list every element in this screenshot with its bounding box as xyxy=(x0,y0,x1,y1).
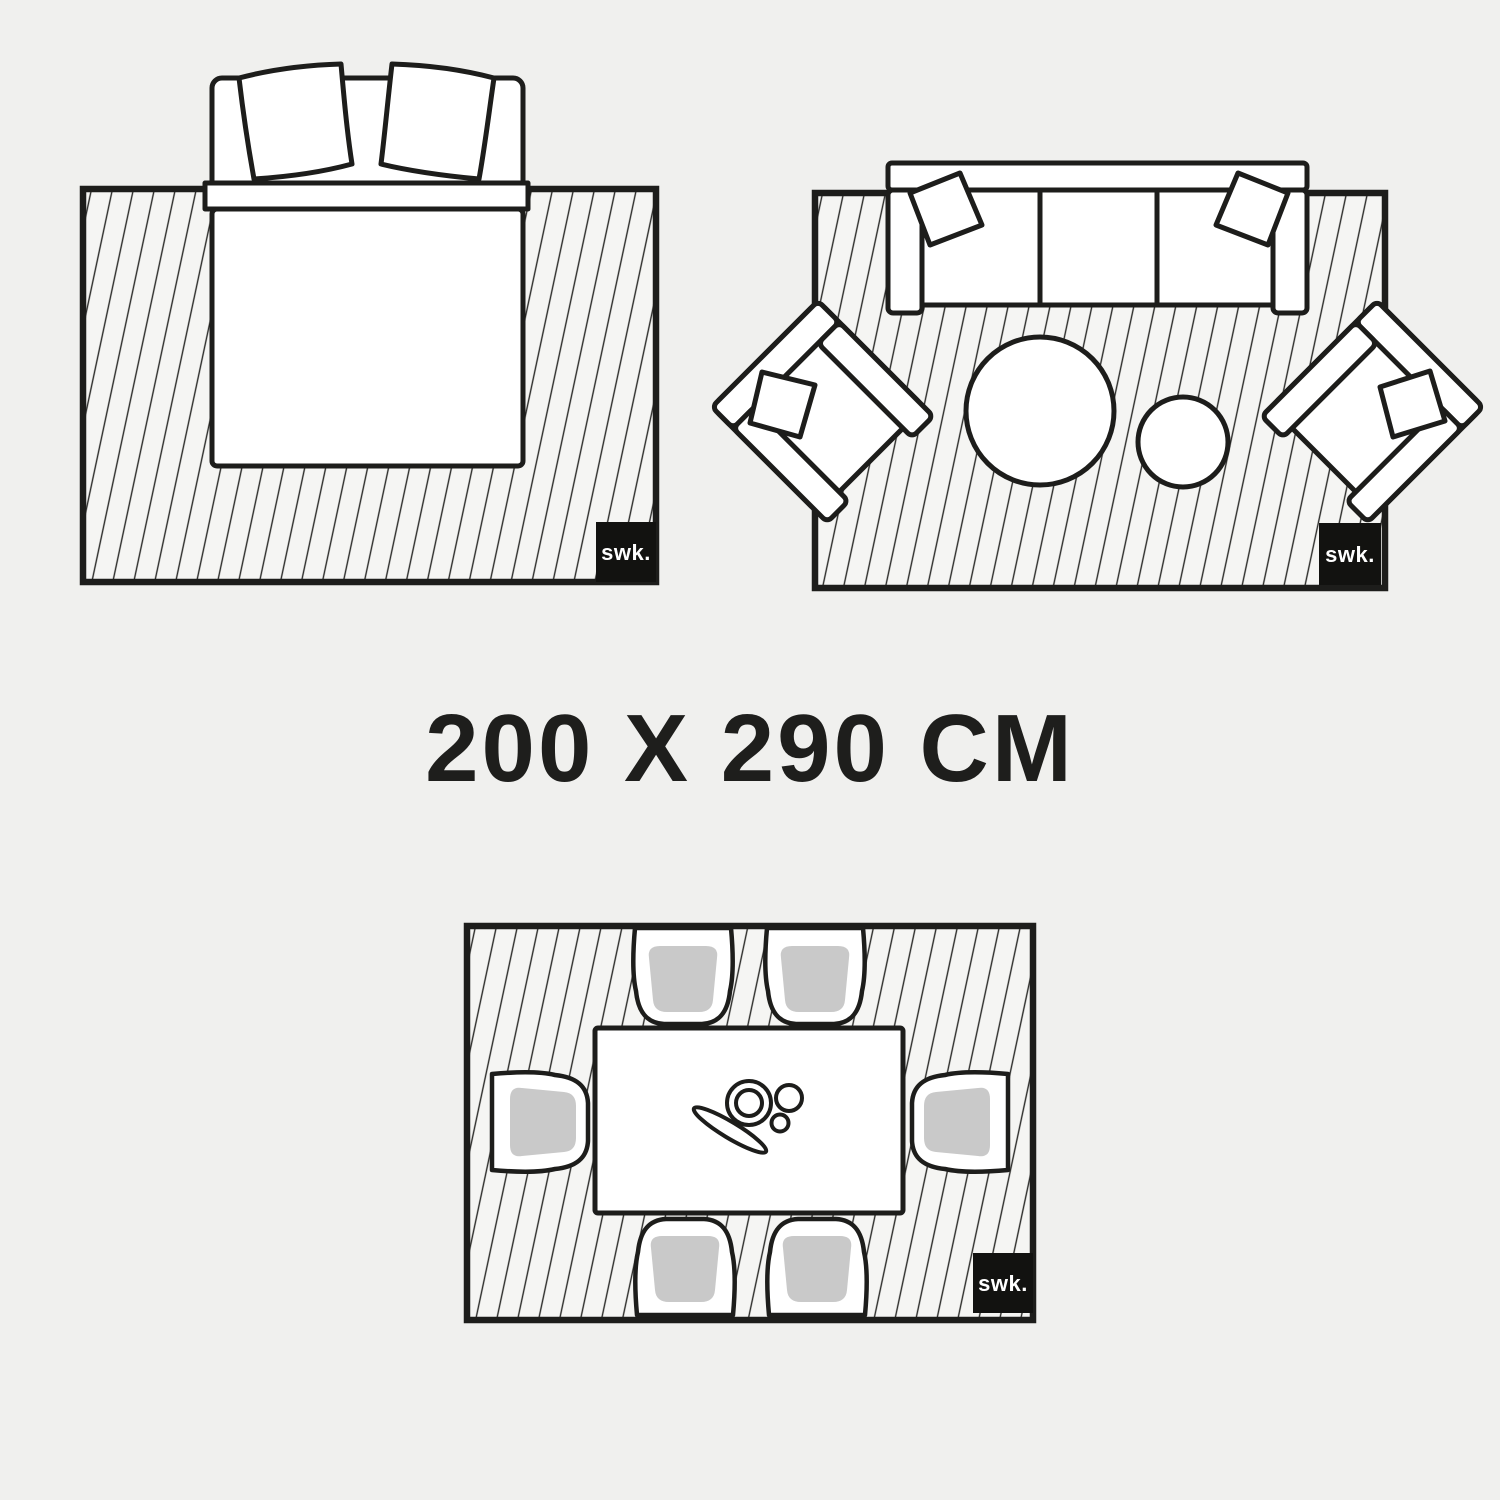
swk-logo: swk. xyxy=(596,522,656,582)
dining-chair-left xyxy=(492,1072,588,1172)
living-room-rug-diagram: swk. xyxy=(700,130,1500,610)
armchair-left-pillow xyxy=(750,372,815,437)
swk-logo-text: swk. xyxy=(1325,542,1375,567)
coffee-table-small xyxy=(1138,397,1228,487)
dining-chair-bottom-1 xyxy=(635,1219,735,1315)
chair-seat-cushion xyxy=(649,946,718,1012)
dining-chair-right xyxy=(912,1072,1008,1172)
chair-seat-cushion xyxy=(510,1088,576,1157)
bed-pillow-right xyxy=(381,64,494,179)
chair-seat-cushion xyxy=(783,1236,852,1302)
swk-logo-text: swk. xyxy=(978,1271,1028,1296)
small-bowl-icon xyxy=(772,1115,789,1132)
bed-blanket-fold xyxy=(205,183,528,209)
plate-inner-ring xyxy=(736,1090,762,1116)
dining-chair-top-2 xyxy=(765,928,865,1024)
bed-duvet xyxy=(212,209,523,466)
dining-room-rug-diagram: swk. xyxy=(430,895,1070,1345)
dining-chair-bottom-2 xyxy=(767,1219,867,1315)
swk-logo: swk. xyxy=(1319,523,1381,585)
bed-pillow-left xyxy=(239,64,352,179)
cup-icon xyxy=(776,1085,802,1111)
chair-seat-cushion xyxy=(651,1236,720,1302)
chair-seat-cushion xyxy=(781,946,850,1012)
size-label: 200 X 290 CM xyxy=(0,701,1500,797)
swk-logo-text: swk. xyxy=(601,540,651,565)
dining-chair-top-1 xyxy=(633,928,733,1024)
sofa xyxy=(888,163,1307,313)
chair-seat-cushion xyxy=(924,1088,990,1157)
bedroom-rug-diagram: swk. xyxy=(70,45,670,595)
swk-logo: swk. xyxy=(973,1253,1033,1313)
coffee-table-large xyxy=(966,337,1114,485)
rug-size-guide: swk. xyxy=(0,0,1500,1500)
